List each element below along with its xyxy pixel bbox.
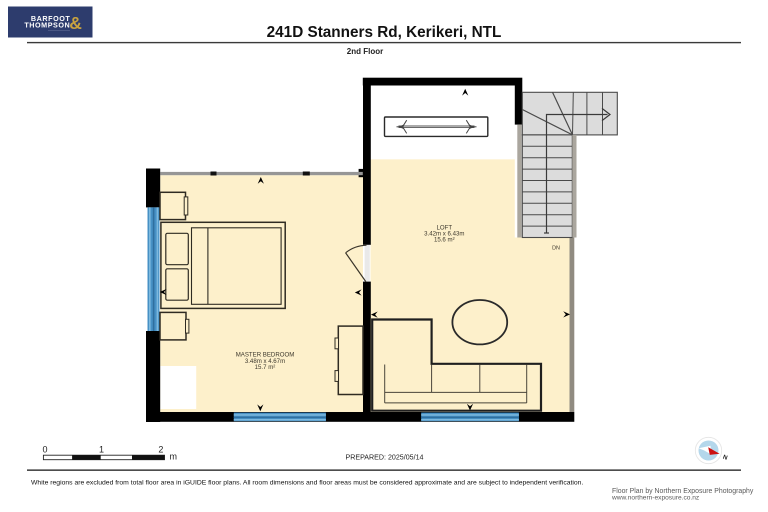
- svg-text:1: 1: [99, 445, 104, 455]
- svg-text:White regions are excluded fro: White regions are excluded from total fl…: [31, 480, 583, 487]
- svg-text:THOMPSON: THOMPSON: [24, 20, 70, 29]
- svg-text:www.northern-exposure.co.nz: www.northern-exposure.co.nz: [611, 495, 699, 502]
- svg-text:2nd Floor: 2nd Floor: [347, 47, 383, 56]
- svg-text:N: N: [722, 454, 729, 462]
- svg-text:241D Stanners Rd, Kerikeri, NT: 241D Stanners Rd, Kerikeri, NTL: [267, 24, 502, 41]
- svg-text:0: 0: [42, 445, 47, 455]
- svg-text:15.7 m²: 15.7 m²: [255, 364, 276, 371]
- svg-text:m: m: [170, 452, 178, 462]
- svg-text:DN: DN: [552, 246, 560, 252]
- svg-text:PREPARED: 2025/05/14: PREPARED: 2025/05/14: [346, 453, 424, 461]
- svg-text:&: &: [69, 13, 82, 33]
- svg-text:2: 2: [158, 445, 163, 455]
- svg-text:15.6 m²: 15.6 m²: [434, 237, 455, 244]
